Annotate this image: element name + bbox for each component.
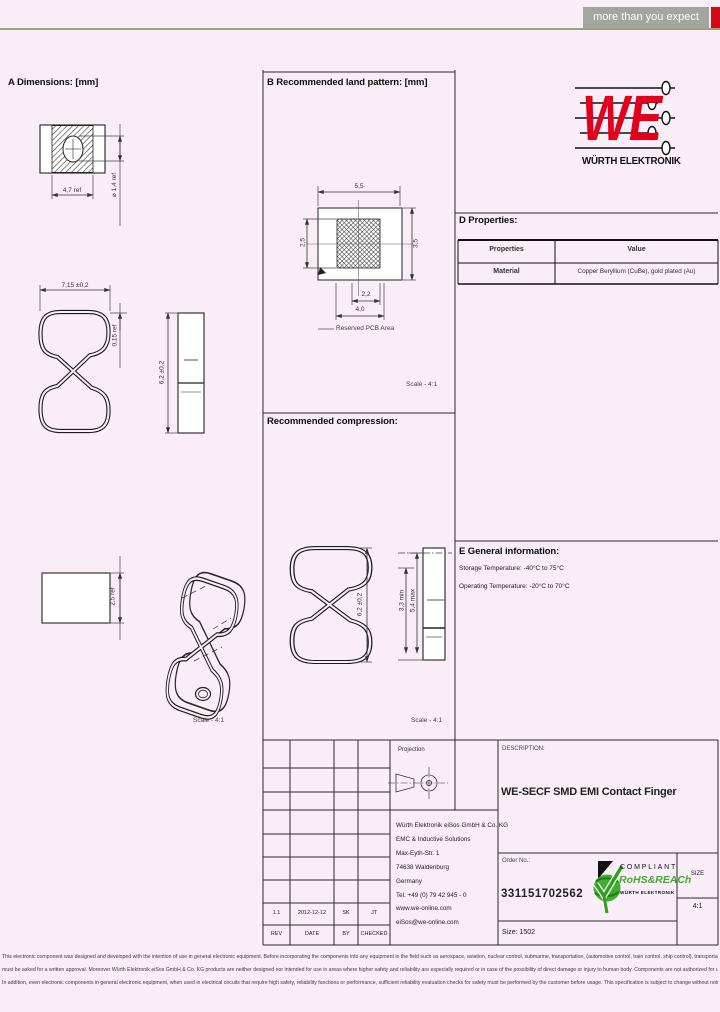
order-number-label: Order No.: [502,858,530,864]
disclaimer: This electronic component was designed a… [2,951,718,990]
rohs-compliant-label: COMPLIANT [620,864,677,871]
properties-col-header: Properties [458,246,555,253]
section-c-title: Recommended compression: [267,416,398,427]
we-logo: WE [582,87,662,151]
checked-label: CHECKED [358,931,390,937]
datasheet-page: more than you expect WE WÜRTH ELEKTRONIK… [0,0,720,1012]
projection-symbol-icon [388,767,448,799]
by-label: BY [334,931,358,937]
dim-label-min: 3,3 min [399,576,406,626]
dim-label-height: 6,2 ±0,2 [159,348,166,398]
rohs-compliance-icon [594,861,623,913]
address-line: Würth Elektronik eiSos GmbH & Co. KG [396,819,508,833]
section-d-title: D Properties: [459,215,517,226]
drawing-profile [40,285,204,433]
address-line: 74638 Waldenburg [396,861,508,875]
dim-label-top-width: 4,7 ref [48,187,96,194]
section-a-title: A Dimensions: [mm] [8,77,98,88]
section-a-scale: Scale - 4:1 [193,717,224,724]
sheet-scale-value: 4:1 [677,903,718,910]
address-line: www.we-online.com [396,902,508,916]
value-col-header: Value [555,246,718,253]
dim-label-width: 7,15 ±0,2 [45,282,105,289]
dim-label-thickness: 0,15 ref [112,311,119,361]
material-cell: Material [458,268,555,275]
rev-label: REV [263,931,290,937]
disclaimer-line: In addition, even electronic components … [2,977,718,990]
dim-label-hole: ⌀ 1,4 ref [110,160,118,210]
description-label: DESCRIPTION: [502,746,545,752]
address-line: Max-Eyth-Str. 1 [396,847,508,861]
dim-label-land-width: 5,5 [339,183,379,190]
address-line: eiSos@we-online.com [396,916,508,930]
date-label: DATE [290,931,334,937]
section-c-scale: Scale - 4:1 [411,717,442,724]
disclaimer-line: This electronic component was designed a… [2,951,718,964]
drawing-depth-and-iso [42,556,248,722]
dim-label-land-height: 3,5 [413,219,420,269]
address-line: Germany [396,875,508,889]
company-address: Würth Elektronik eiSos GmbH & Co. KG EMC… [396,819,508,930]
projection-label: Projection [398,747,425,753]
dim-label-depth: 2,5 ref [110,572,117,622]
by-value: SK [334,910,358,916]
section-e-title: E General information: [459,546,559,557]
part-description: WE-SECF SMD EMI Contact Finger [501,786,677,798]
operating-temperature: Operating Temperature: -20°C to 70°C [459,583,570,590]
section-b-title: B Recommended land pattern: [mm] [267,77,427,88]
drawing-compression [292,548,452,662]
dim-label-outer-width: 4,0 [345,306,375,313]
rohs-brand-label: WÜRTH ELEKTRONIK [620,890,675,895]
frame-lines [263,70,718,945]
size-box-label: SIZE [677,871,718,877]
disclaimer-line: must be asked for a written approval. Mo… [2,964,718,977]
dim-label-max: 5,4 max [410,576,417,626]
size-text: Size: 1502 [502,929,535,936]
header-tagline: more than you expect [583,7,709,28]
section-b-scale: Scale - 4:1 [406,381,437,388]
dim-label-free-height: 6,2 ±0,2 [357,580,364,630]
order-number: 331151702562 [501,888,583,900]
storage-temperature: Storage Temperature: -40°C to 75°C [459,565,564,572]
dim-label-pad-height: 2,5 [300,218,307,268]
rev-value: 1.1 [263,910,290,916]
address-line: Tel. +49 (0) 79 42 945 - 0 [396,889,508,903]
reserved-pcb-label: Reserved PCB Area [336,325,394,332]
checked-value: JT [358,910,390,916]
address-line: EMC & Inductive Solutions [396,833,508,847]
dim-label-pad-width: 2,2 [351,291,381,298]
date-value: 2012-12-12 [290,910,334,916]
header-accent-block [711,7,720,28]
material-value-cell: Copper Beryllium (CuBe), gold plated (Au… [555,268,718,275]
we-logo-caption: WÜRTH ELEKTRONIK [582,156,681,167]
